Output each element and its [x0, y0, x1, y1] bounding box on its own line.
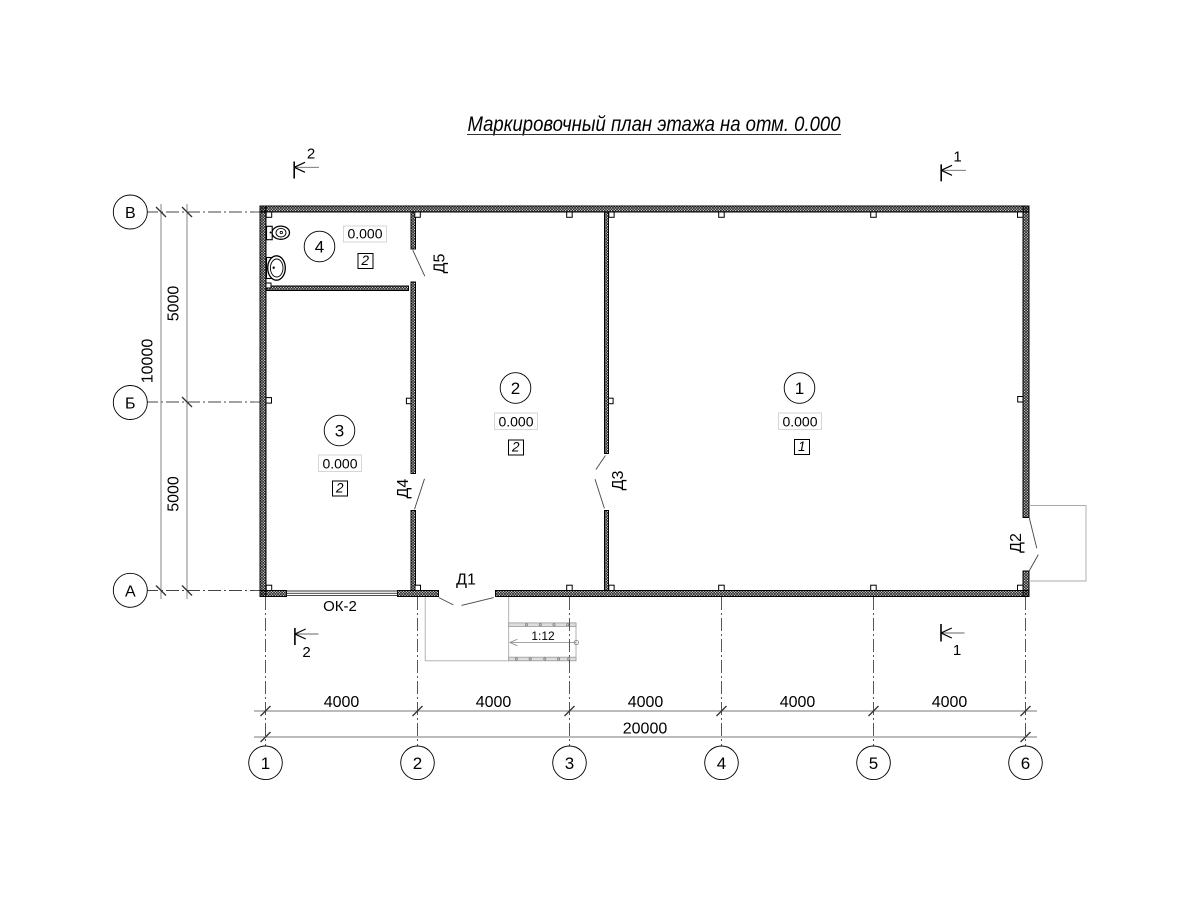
svg-text:В: В: [125, 205, 136, 222]
svg-text:Маркировочный план этажа на от: Маркировочный план этажа на отм. 0.000: [468, 113, 841, 136]
svg-text:4000: 4000: [628, 694, 664, 711]
svg-text:5000: 5000: [166, 476, 183, 512]
svg-text:2: 2: [307, 146, 315, 163]
svg-text:2: 2: [302, 644, 310, 661]
svg-text:2: 2: [360, 253, 369, 268]
svg-text:2: 2: [511, 440, 520, 455]
svg-text:5000: 5000: [166, 286, 183, 322]
svg-text:4000: 4000: [324, 694, 360, 711]
svg-text:Д2: Д2: [1008, 533, 1025, 553]
svg-text:4000: 4000: [932, 694, 968, 711]
svg-text:1: 1: [953, 149, 961, 166]
svg-text:Д4: Д4: [395, 479, 412, 499]
svg-text:Д3: Д3: [610, 471, 627, 491]
svg-text:6: 6: [1021, 754, 1030, 773]
svg-text:0.000: 0.000: [322, 456, 357, 472]
svg-text:2: 2: [335, 481, 344, 496]
svg-text:Д1: Д1: [456, 572, 476, 589]
svg-text:4000: 4000: [476, 694, 512, 711]
svg-text:3: 3: [565, 754, 574, 773]
svg-text:0.000: 0.000: [782, 414, 817, 430]
svg-text:Д5: Д5: [432, 254, 449, 274]
svg-text:10000: 10000: [140, 339, 157, 384]
svg-text:3: 3: [335, 422, 344, 441]
svg-text:А: А: [125, 583, 136, 600]
svg-text:4000: 4000: [780, 694, 816, 711]
svg-text:1: 1: [798, 439, 806, 454]
svg-text:1:12: 1:12: [531, 629, 555, 643]
svg-text:20000: 20000: [623, 721, 668, 738]
svg-text:2: 2: [511, 379, 520, 398]
svg-text:1: 1: [795, 379, 804, 398]
svg-text:5: 5: [869, 754, 878, 773]
svg-text:0.000: 0.000: [498, 414, 533, 430]
svg-text:ОК-2: ОК-2: [323, 598, 357, 615]
svg-text:0.000: 0.000: [347, 226, 382, 242]
svg-text:4: 4: [315, 238, 324, 257]
svg-text:4: 4: [717, 754, 726, 773]
svg-text:1: 1: [261, 754, 270, 773]
svg-text:Б: Б: [125, 396, 136, 413]
svg-text:1: 1: [953, 642, 961, 659]
svg-text:2: 2: [413, 754, 422, 773]
